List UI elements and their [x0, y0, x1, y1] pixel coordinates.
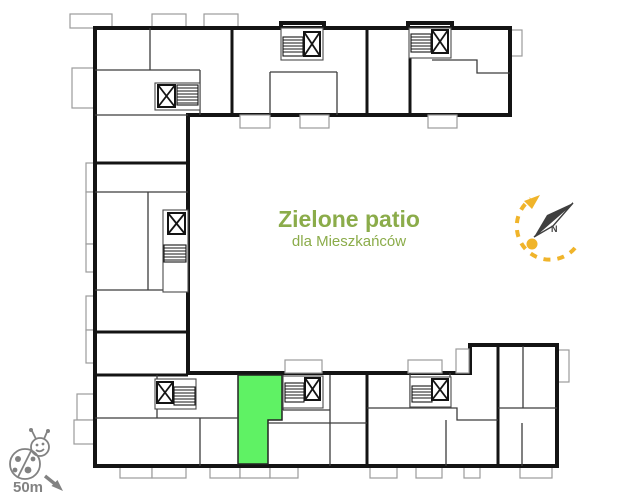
ladybug-icon	[10, 428, 50, 479]
patio-balconies	[240, 115, 469, 373]
balcony	[77, 394, 95, 420]
route-dot	[527, 239, 538, 250]
stairs-icon	[283, 37, 303, 56]
route-arrowhead-icon	[524, 195, 540, 209]
stairs-icon	[412, 386, 432, 402]
balcony	[300, 115, 329, 128]
balcony	[74, 420, 94, 444]
north-label: N	[551, 224, 558, 234]
balcony	[204, 14, 238, 28]
patio-area	[190, 117, 508, 371]
balcony	[285, 360, 322, 373]
scale-arrow-icon	[45, 476, 63, 491]
staircase-core	[155, 379, 196, 409]
stairs-icon	[177, 85, 198, 105]
stairs-icon	[174, 387, 195, 405]
balcony	[428, 115, 457, 128]
staircase-core	[281, 28, 323, 60]
staircase-core	[410, 377, 451, 407]
balcony	[456, 349, 469, 373]
stairs-icon	[164, 245, 186, 262]
floor-plan-canvas: N 50m Zielone patio dla Mieszkańców	[0, 0, 630, 500]
balcony	[240, 115, 270, 128]
floor-plan: N 50m	[0, 0, 630, 500]
staircase-core	[283, 376, 323, 408]
north-arrow-icon: N	[534, 203, 573, 237]
staircase-core	[155, 83, 200, 110]
staircase-core	[163, 210, 188, 292]
balcony	[72, 68, 94, 108]
scale-label: 50m	[13, 479, 43, 496]
staircase-core	[409, 28, 451, 58]
balcony	[70, 14, 112, 28]
balcony	[152, 14, 186, 28]
stairs-icon	[285, 383, 304, 402]
stairs-icon	[411, 34, 431, 52]
balcony	[408, 360, 442, 373]
north-indicator: N	[517, 195, 575, 260]
